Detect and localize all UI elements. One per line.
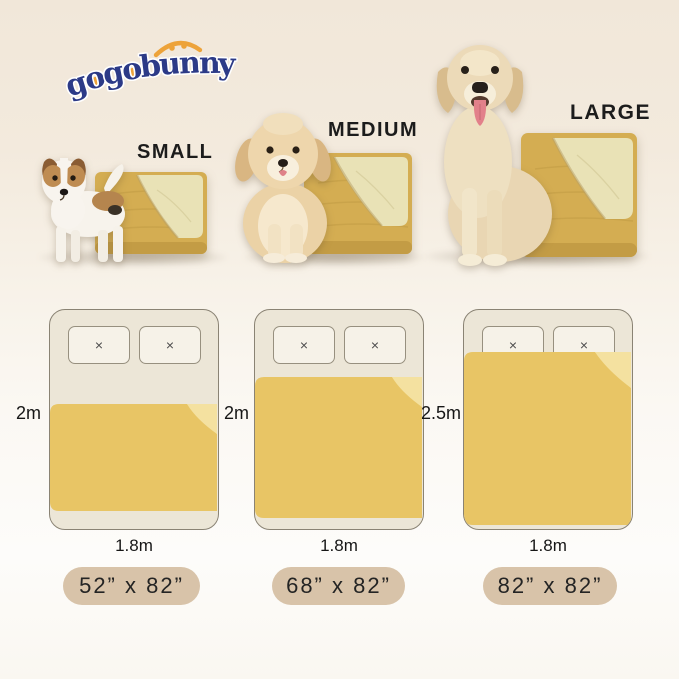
pillow-stitch-mark: × bbox=[95, 338, 103, 352]
product-size-infographic: gogobunny SMALL MEDIUM LARGE bbox=[0, 0, 679, 679]
pillow: × bbox=[139, 326, 201, 364]
bed-width-label-large: 1.8m bbox=[513, 536, 583, 556]
bunny-face-icon bbox=[152, 33, 204, 59]
bed-length-label-small: 2m bbox=[16, 403, 41, 424]
bed-diagram-large: × × bbox=[463, 309, 633, 530]
blanket-overlay-small bbox=[50, 404, 217, 511]
pillow-stitch-mark: × bbox=[166, 338, 174, 352]
golden-retriever-photo bbox=[418, 32, 558, 268]
jack-russell-puppy-photo bbox=[26, 148, 146, 266]
blanket-overlay-large bbox=[464, 352, 631, 525]
brand-logo-text: gogobunny bbox=[66, 52, 234, 87]
pillow: × bbox=[273, 326, 335, 364]
dimensions-badge-small: 52” x 82” bbox=[63, 567, 200, 605]
blanket-overlay-medium bbox=[255, 377, 422, 518]
fluffy-cream-puppy-photo bbox=[233, 104, 338, 264]
pillow-stitch-mark: × bbox=[300, 338, 308, 352]
dimensions-badge-medium: 68” x 82” bbox=[272, 567, 405, 605]
size-label-large: LARGE bbox=[570, 101, 651, 125]
bed-width-label-small: 1.8m bbox=[99, 536, 169, 556]
bed-width-label-medium: 1.8m bbox=[304, 536, 374, 556]
bed-length-label-medium: 2m bbox=[224, 403, 249, 424]
bed-diagram-medium: × × bbox=[254, 309, 424, 530]
pillow-stitch-mark: × bbox=[509, 338, 517, 352]
logo-letter: y bbox=[218, 47, 236, 82]
pillow: × bbox=[344, 326, 406, 364]
bed-diagram-small: × × bbox=[49, 309, 219, 530]
size-label-medium: MEDIUM bbox=[328, 119, 418, 142]
pillow-stitch-mark: × bbox=[371, 338, 379, 352]
bed-length-label-large: 2.5m bbox=[421, 403, 461, 424]
size-label-small: SMALL bbox=[137, 141, 213, 164]
pillow: × bbox=[68, 326, 130, 364]
brand-logo: gogobunny bbox=[66, 40, 236, 120]
dimensions-badge-large: 82” x 82” bbox=[483, 567, 617, 605]
pillow-stitch-mark: × bbox=[580, 338, 588, 352]
